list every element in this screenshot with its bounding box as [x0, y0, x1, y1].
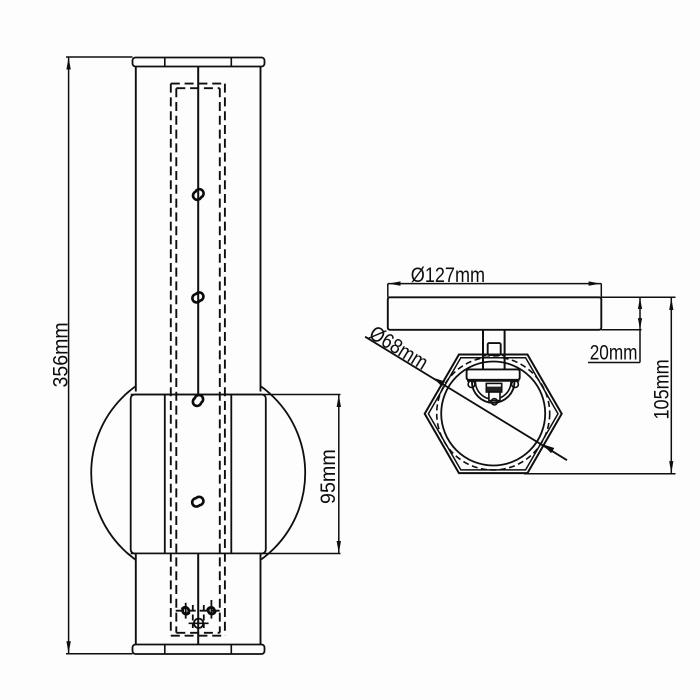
- svg-text:95mm: 95mm: [317, 449, 340, 504]
- svg-text:105mm: 105mm: [650, 359, 674, 419]
- svg-text:20mm: 20mm: [590, 342, 638, 365]
- svg-text:356mm: 356mm: [50, 322, 73, 387]
- svg-text:Ø127mm: Ø127mm: [411, 264, 485, 288]
